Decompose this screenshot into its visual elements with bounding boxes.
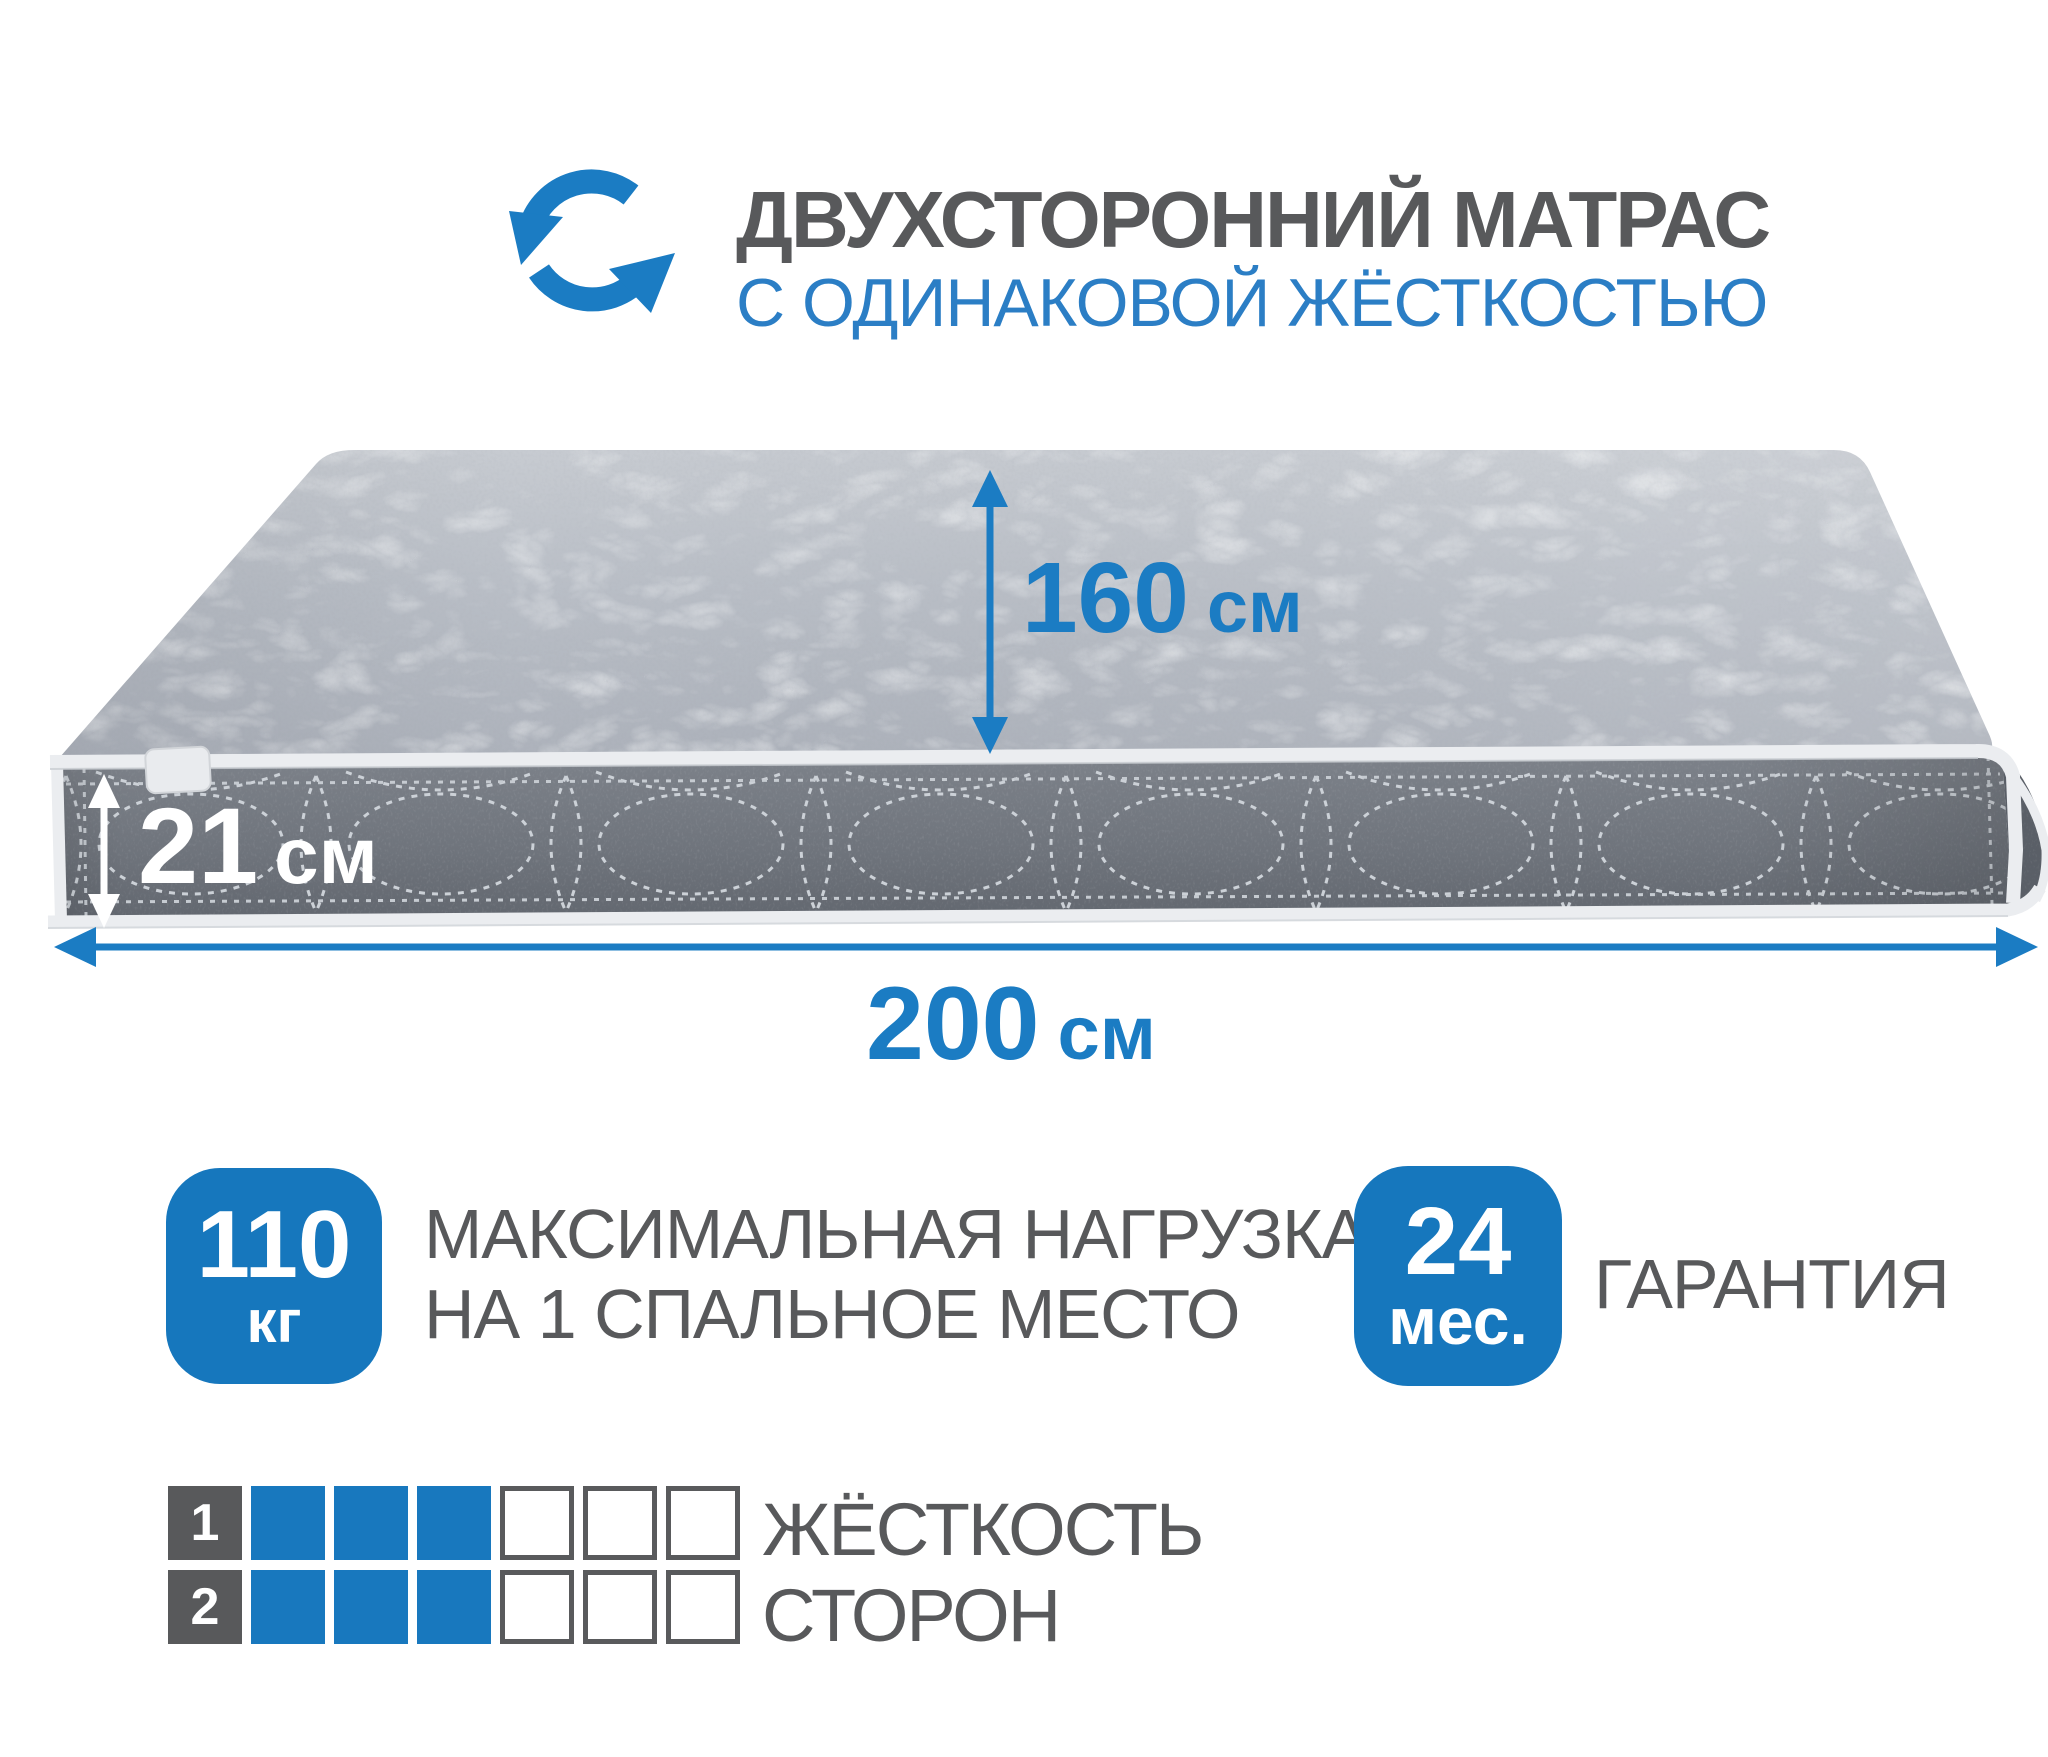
width-unit: см bbox=[1207, 570, 1303, 644]
firmness-filled-square bbox=[334, 1570, 408, 1644]
thickness-value: 21 bbox=[138, 792, 258, 900]
firmness-caption-line1: ЖЁСТКОСТЬ bbox=[762, 1492, 1203, 1568]
firmness-row: 2 bbox=[168, 1570, 740, 1644]
warranty-badge: 24 мес. bbox=[1354, 1166, 1562, 1386]
firmness-filled-square bbox=[417, 1570, 491, 1644]
warranty-unit: мес. bbox=[1388, 1287, 1528, 1356]
length-unit: см bbox=[1058, 996, 1157, 1072]
firmness-filled-square bbox=[251, 1570, 325, 1644]
warranty-label: ГАРАНТИЯ bbox=[1594, 1244, 1949, 1324]
max-load-unit: кг bbox=[246, 1290, 301, 1353]
firmness-empty-square bbox=[666, 1570, 740, 1644]
length-value: 200 bbox=[866, 972, 1040, 1076]
firmness-side-number: 1 bbox=[168, 1486, 242, 1560]
firmness-caption-line2: СТОРОН bbox=[762, 1578, 1059, 1654]
infographic-canvas: ДВУХСТОРОННИЙ МАТРАС С ОДИНАКОВОЙ ЖЁСТКО… bbox=[0, 0, 2048, 1757]
width-dimension: 160 см bbox=[1022, 548, 1303, 648]
max-load-value: 110 bbox=[197, 1199, 352, 1290]
max-load-label-line2: НА 1 СПАЛЬНОЕ МЕСТО bbox=[424, 1274, 1367, 1354]
length-dimension-arrow bbox=[54, 927, 2038, 967]
thickness-unit: см bbox=[274, 816, 378, 896]
firmness-empty-square bbox=[500, 1486, 574, 1560]
width-value: 160 bbox=[1022, 548, 1189, 648]
firmness-side-number: 2 bbox=[168, 1570, 242, 1644]
thickness-dimension: 21 см bbox=[138, 792, 378, 900]
firmness-row: 1 bbox=[168, 1486, 740, 1560]
firmness-empty-square bbox=[583, 1570, 657, 1644]
firmness-filled-square bbox=[251, 1486, 325, 1560]
firmness-filled-square bbox=[417, 1486, 491, 1560]
warranty-value: 24 bbox=[1405, 1196, 1512, 1287]
length-dimension: 200 см bbox=[866, 972, 1156, 1076]
firmness-scale: 12 bbox=[168, 1486, 740, 1644]
max-load-label: МАКСИМАЛЬНАЯ НАГРУЗКА НА 1 СПАЛЬНОЕ МЕСТ… bbox=[424, 1194, 1367, 1354]
firmness-filled-square bbox=[334, 1486, 408, 1560]
max-load-badge: 110 кг bbox=[166, 1168, 382, 1384]
firmness-empty-square bbox=[583, 1486, 657, 1560]
firmness-empty-square bbox=[500, 1570, 574, 1644]
firmness-empty-square bbox=[666, 1486, 740, 1560]
max-load-label-line1: МАКСИМАЛЬНАЯ НАГРУЗКА bbox=[424, 1194, 1367, 1274]
